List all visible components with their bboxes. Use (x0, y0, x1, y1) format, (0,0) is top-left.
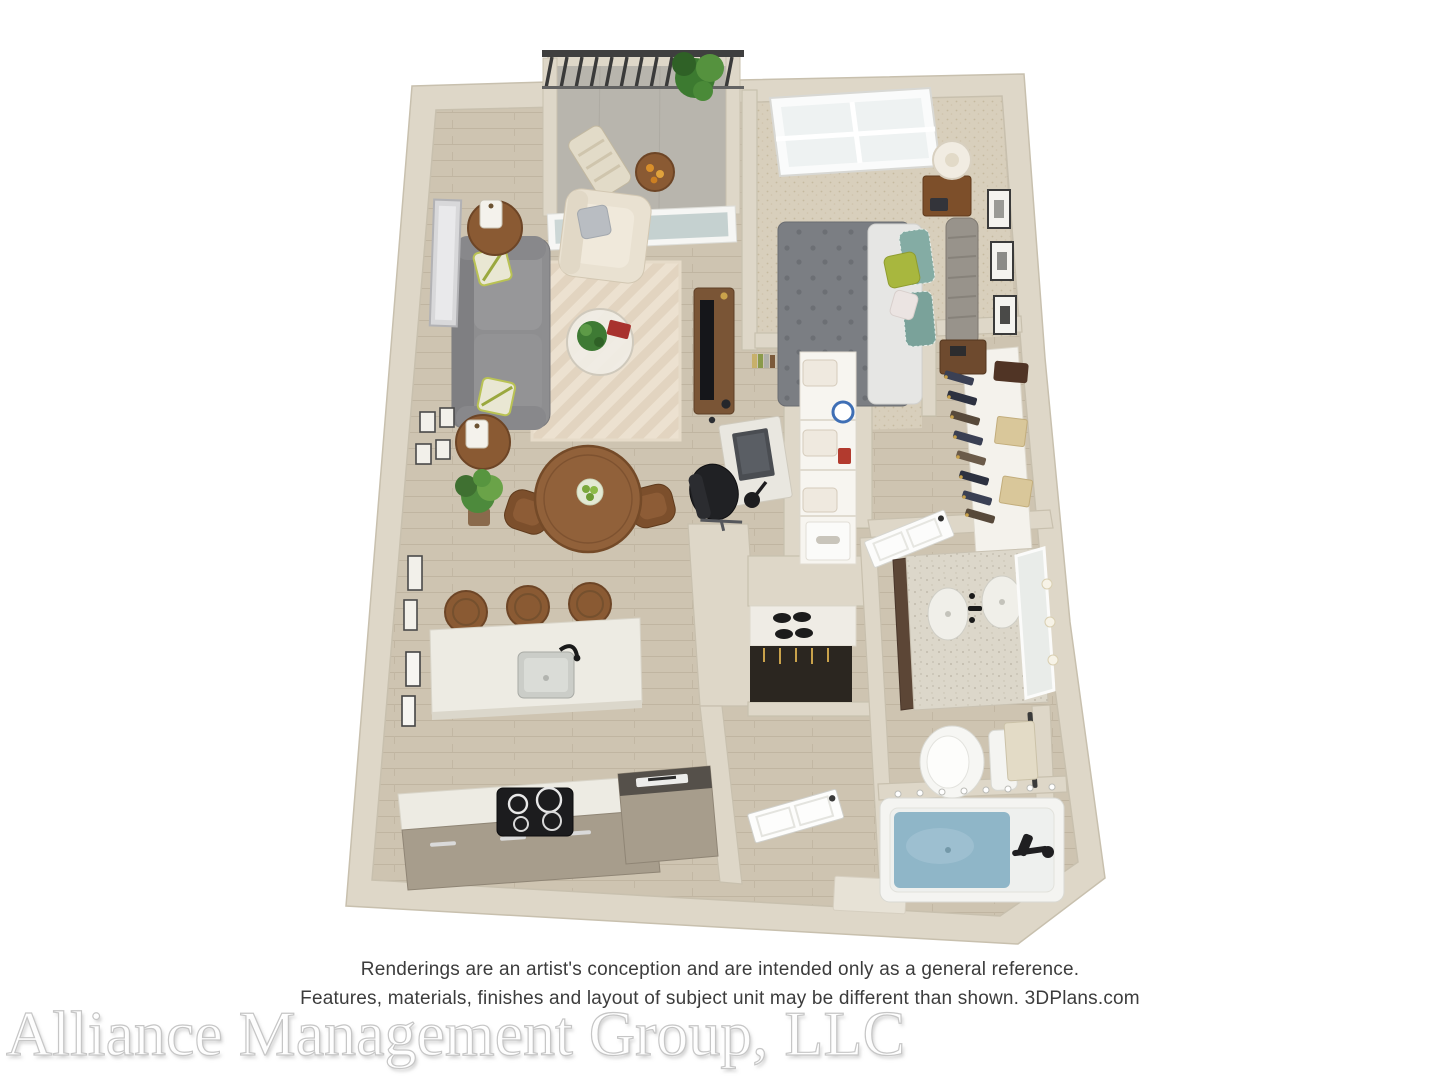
speaker (721, 399, 730, 408)
dresser (940, 340, 986, 374)
media-console (694, 288, 734, 423)
cooktop (497, 788, 573, 836)
bag (993, 361, 1029, 384)
hanging-coats (750, 646, 852, 702)
fruit-bowl (577, 479, 603, 505)
floor-plan-rendering (0, 0, 1440, 1080)
kitchen-island (430, 618, 642, 720)
detergent (838, 448, 851, 464)
shoe-shelf (750, 606, 856, 646)
green-pillow (883, 251, 921, 289)
magazine (930, 198, 948, 211)
plant (577, 321, 607, 351)
water-jug (833, 402, 853, 422)
bar-stool (569, 583, 611, 625)
tv (700, 300, 714, 400)
throw-pillow (477, 377, 516, 416)
linen-closet (800, 352, 856, 564)
armchair (557, 187, 653, 285)
toilet (920, 726, 1018, 798)
sofa (452, 236, 550, 430)
headboard (946, 218, 978, 346)
refrigerator (618, 766, 718, 864)
disclaimer-line-1: Renderings are an artist's conception an… (0, 959, 1440, 981)
patio-table (636, 153, 674, 191)
towel-stacks (803, 360, 837, 512)
leaning-mirror (430, 200, 461, 327)
vanity (893, 548, 1058, 710)
bar-stool (507, 586, 549, 628)
bedroom-window (770, 88, 940, 176)
books-on-floor (752, 354, 781, 368)
watermark-text: Alliance Management Group, LLC (6, 1000, 905, 1067)
bathtub (880, 784, 1064, 902)
towel-rack (1004, 712, 1038, 788)
coat-closet (750, 606, 856, 702)
side-table-bottom (456, 415, 510, 469)
side-table-top (468, 200, 522, 255)
coffee-table (567, 309, 633, 375)
gray-pillow (577, 204, 612, 239)
page: Renderings are an artist's conception an… (0, 0, 1440, 1080)
